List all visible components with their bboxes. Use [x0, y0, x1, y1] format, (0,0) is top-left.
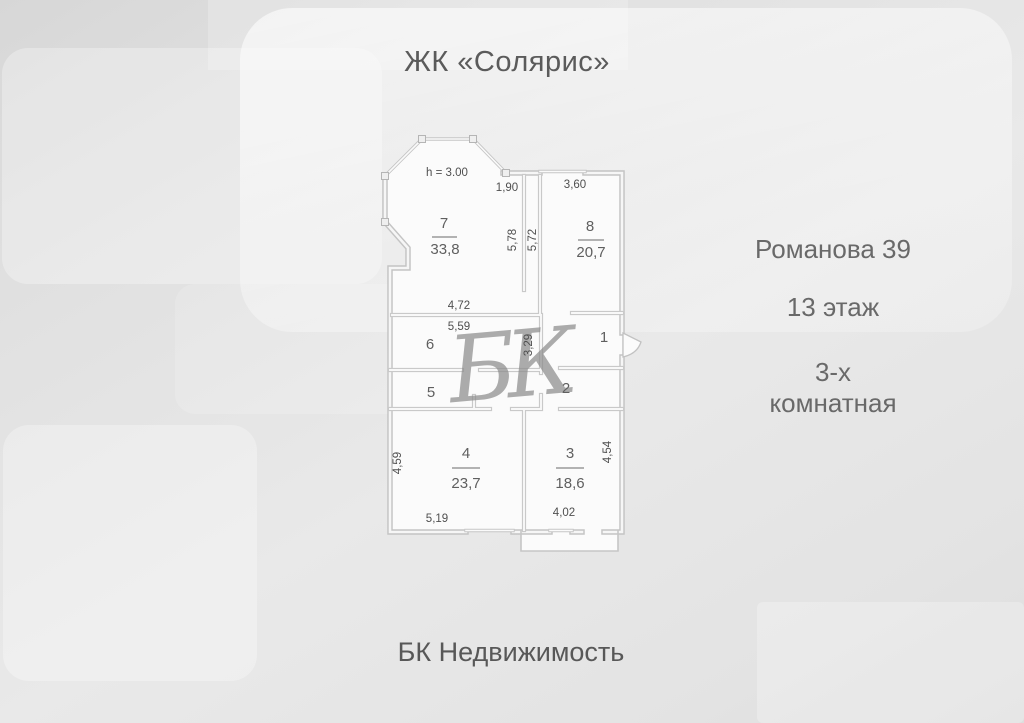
room-4-number: 4	[462, 445, 470, 462]
entrance-door-swing	[623, 333, 641, 357]
dim-room3-height: 4,54	[602, 440, 614, 463]
dim-room3-width: 4,02	[553, 507, 575, 519]
room-8-number: 8	[586, 218, 594, 235]
dim-mid-lower: 5,59	[448, 321, 470, 333]
dim-hall-left: 5,78	[507, 229, 519, 251]
room-1-number: 1	[600, 329, 608, 346]
room-3-number: 3	[566, 445, 574, 462]
room-3-area: 18,6	[555, 475, 584, 492]
room-6-number: 6	[426, 336, 434, 353]
dim-mid-upper: 4,72	[448, 300, 470, 312]
room-4-area: 23,7	[451, 475, 480, 492]
dim-top-left: 1,90	[496, 182, 518, 194]
dim-hall-right: 5,72	[527, 229, 539, 251]
room-7-area: 33,8	[430, 241, 459, 258]
dim-ceiling-height: h = 3.00	[426, 167, 468, 179]
dim-room4-height: 4,59	[392, 452, 404, 474]
room-2-number: 2	[562, 380, 570, 397]
flyer-page: ЖК «Солярис» Романова 39 13 этаж 3-х ком…	[0, 0, 1024, 723]
room-8-area: 20,7	[576, 244, 605, 261]
dim-top-right: 3,60	[564, 179, 586, 191]
dim-room4-width: 5,19	[426, 513, 448, 525]
room-7-number: 7	[440, 215, 448, 232]
dim-mid-vert: 3,29	[523, 334, 535, 356]
room-5-number: 5	[427, 384, 435, 401]
floor-plan: БК h = 3.00 1,90 3,60 5,78 5,72 4,72 5,5…	[0, 0, 1024, 723]
